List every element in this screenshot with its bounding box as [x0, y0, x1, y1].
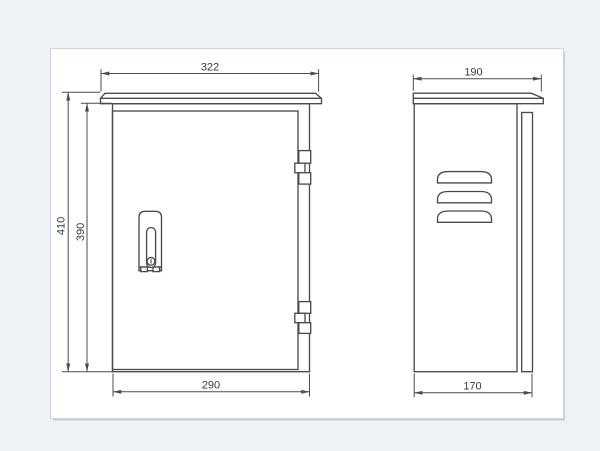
front-body-height-label: 390	[75, 223, 87, 241]
handle-foot-left	[141, 267, 148, 272]
hinge-lower-knuckle-top	[299, 302, 311, 314]
hinge-upper-knuckle-middle	[295, 163, 305, 173]
front-overall-height-label: 410	[56, 217, 68, 235]
side-roof-depth-label: 190	[464, 66, 482, 78]
door-handle	[139, 211, 162, 271]
technical-drawing: 322 410 390 290	[0, 0, 600, 451]
page-background: 322 410 390 290	[0, 0, 600, 451]
front-body-width-label: 290	[202, 379, 220, 391]
handle-foot-right	[153, 267, 160, 272]
side-body-depth-label: 170	[463, 380, 481, 392]
front-roof-width-label: 322	[201, 61, 219, 73]
hinge-upper-knuckle-top	[299, 151, 311, 164]
hinge-lower-knuckle-bottom	[299, 323, 311, 334]
hinge-upper-knuckle-bottom	[299, 173, 311, 184]
hinge-lower-knuckle-middle	[295, 313, 305, 322]
